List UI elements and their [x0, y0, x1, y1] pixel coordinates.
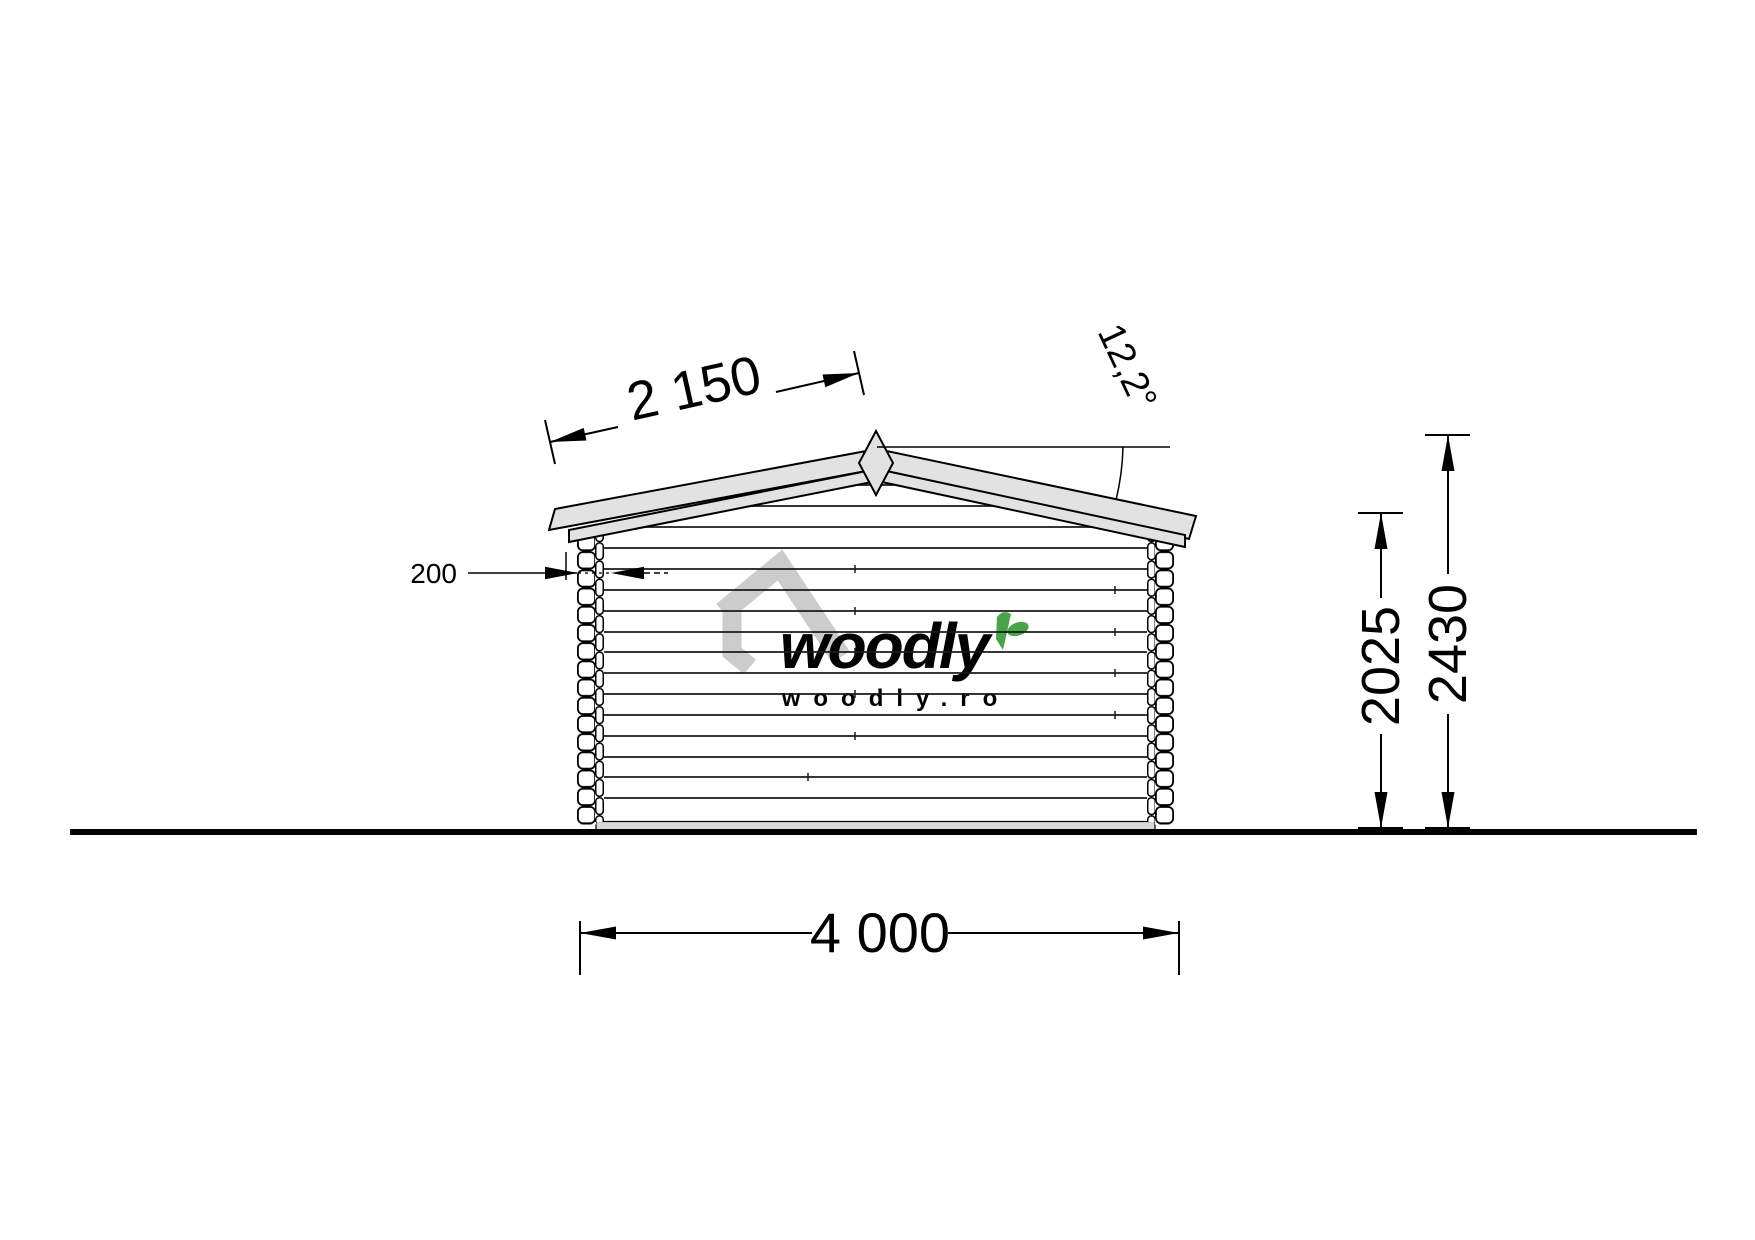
dimension-total-height: 2430	[1418, 435, 1478, 828]
angle-arc	[1116, 447, 1123, 500]
building-width-label: 4 000	[810, 901, 950, 964]
baseboard	[596, 822, 1155, 831]
arrow-down-icon	[1375, 792, 1388, 828]
wall-height-label: 2025	[1351, 606, 1411, 726]
arrow-right-icon	[545, 567, 578, 579]
dimension-wall-height: 2025	[1351, 513, 1411, 828]
arrow-down-icon	[1442, 792, 1455, 828]
watermark-brand-text: woodly	[780, 610, 994, 682]
arrow-up-icon	[1442, 435, 1455, 471]
roof-slope-label: 2 150	[622, 344, 767, 432]
dimension-building-width: 4 000	[580, 901, 1179, 975]
arrow-up-icon	[1375, 513, 1388, 549]
total-height-label: 2430	[1418, 584, 1478, 704]
corner-log-column-left	[577, 533, 604, 825]
dimension-roof-slope: 2 150	[545, 344, 864, 464]
arrow-right-icon	[1143, 927, 1179, 940]
watermark-website-text: woodly.ro	[781, 685, 1011, 712]
wall-thickness-label: 200	[410, 558, 457, 589]
corner-log-column-right	[1147, 533, 1174, 825]
arrow-right-icon	[823, 373, 860, 387]
roof-angle-label: 12,2°	[1089, 318, 1165, 417]
arrow-left-icon	[580, 927, 616, 940]
elevation-drawing-canvas: woodly woodly.ro	[0, 0, 1755, 1240]
technical-drawing-svg: woodly woodly.ro	[0, 0, 1755, 1240]
arrow-left-icon	[550, 428, 587, 442]
